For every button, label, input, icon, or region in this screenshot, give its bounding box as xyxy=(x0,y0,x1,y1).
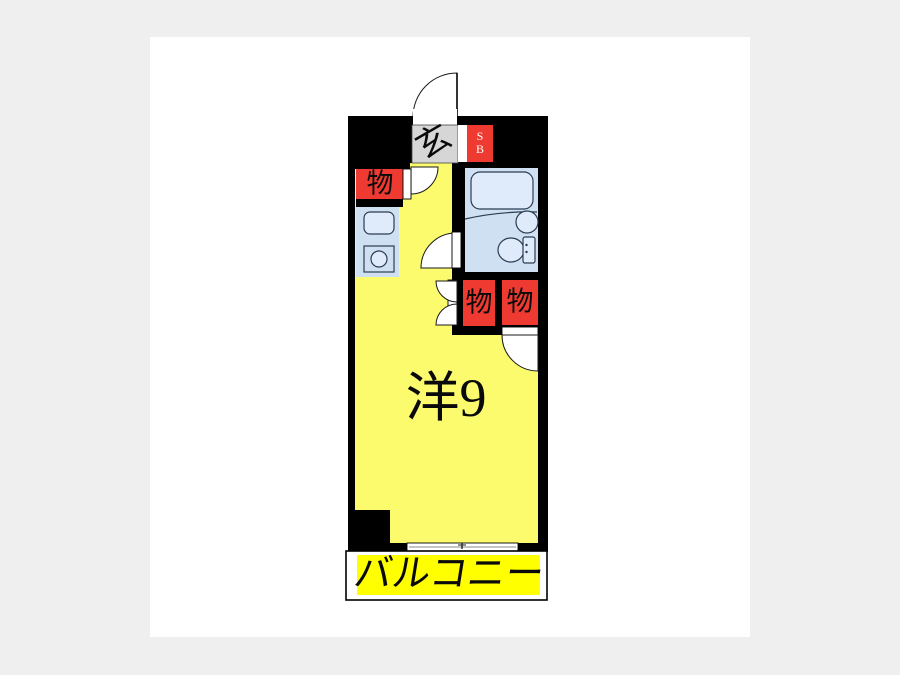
toilet-tank xyxy=(523,237,535,263)
storage-label: 物 xyxy=(466,290,493,317)
bathroom-area xyxy=(465,168,538,272)
room-size-label: 洋9 xyxy=(406,371,487,425)
bathroom-sink xyxy=(516,211,538,233)
balcony-label: バルコニー xyxy=(351,555,546,593)
shoebox-label-bottom: B xyxy=(476,143,484,156)
balcony-window xyxy=(407,543,518,551)
floorplan-page: { "floorplan": { "labels": { "entrance":… xyxy=(0,0,900,675)
kitchen-area xyxy=(356,207,399,277)
toilet-bowl xyxy=(498,238,524,262)
storage-label: 物 xyxy=(367,171,394,198)
shoebox-label: S B xyxy=(476,130,484,156)
kitchen-burner xyxy=(371,251,387,267)
storage-label: 物 xyxy=(507,289,534,316)
bathtub xyxy=(471,172,533,209)
kitchen-sink xyxy=(364,212,394,234)
